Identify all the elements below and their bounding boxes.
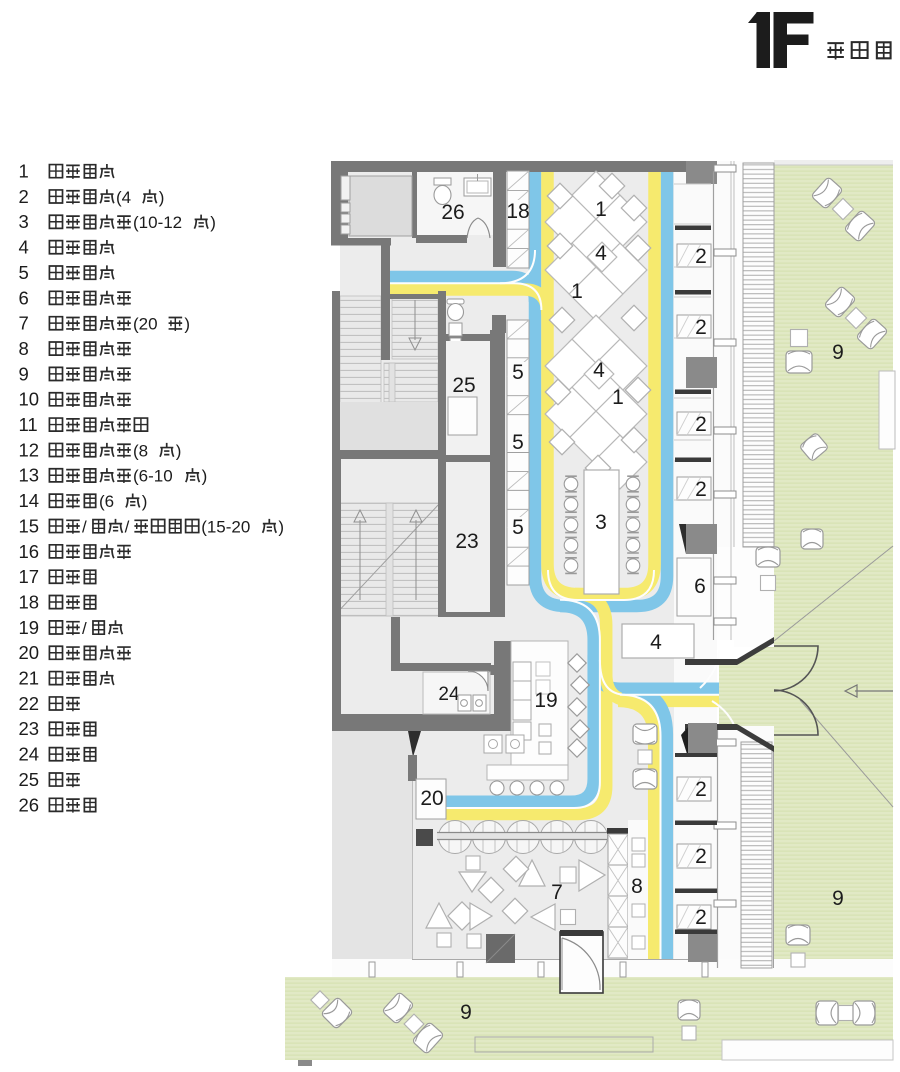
svg-text:5: 5 (19, 262, 29, 283)
svg-text:14: 14 (19, 490, 40, 511)
svg-text:(6: (6 (99, 492, 114, 511)
svg-text:3: 3 (19, 211, 29, 232)
svg-text:7: 7 (551, 881, 563, 904)
svg-text:24: 24 (19, 744, 40, 765)
svg-text:17: 17 (19, 566, 40, 587)
svg-text:(15-20: (15-20 (201, 517, 250, 536)
svg-text:9: 9 (832, 887, 844, 910)
svg-text:18: 18 (19, 591, 40, 612)
svg-text:2: 2 (695, 778, 707, 801)
svg-text:25: 25 (19, 769, 40, 790)
svg-text:1: 1 (612, 386, 624, 409)
svg-text:6: 6 (694, 575, 706, 598)
svg-text:): ) (184, 315, 190, 334)
svg-text:/: / (125, 517, 130, 536)
svg-text:9: 9 (460, 1001, 472, 1024)
svg-text:9: 9 (832, 341, 844, 364)
svg-text:): ) (210, 213, 216, 232)
svg-text:(4: (4 (116, 188, 131, 207)
svg-text:): ) (176, 441, 182, 460)
svg-text:26: 26 (441, 201, 464, 224)
svg-text:/: / (82, 517, 87, 536)
svg-text:1: 1 (595, 198, 607, 221)
svg-text:18: 18 (506, 200, 529, 223)
svg-text:2: 2 (695, 245, 707, 268)
svg-text:25: 25 (452, 374, 475, 397)
svg-text:4: 4 (19, 237, 29, 258)
svg-text:22: 22 (19, 693, 40, 714)
svg-text:21: 21 (19, 668, 40, 689)
svg-text:23: 23 (455, 530, 478, 553)
svg-text:24: 24 (438, 684, 460, 705)
svg-text:3: 3 (595, 511, 607, 534)
svg-text:(20: (20 (133, 315, 158, 334)
svg-text:26: 26 (19, 794, 40, 815)
svg-text:2: 2 (695, 845, 707, 868)
svg-text:5: 5 (512, 516, 524, 539)
svg-text:10: 10 (19, 389, 40, 410)
svg-text:8: 8 (631, 875, 643, 898)
svg-text:23: 23 (19, 718, 40, 739)
svg-text:2: 2 (695, 413, 707, 436)
svg-text:20: 20 (420, 787, 443, 810)
svg-text:19: 19 (534, 689, 557, 712)
svg-text:): ) (202, 467, 208, 486)
svg-text:16: 16 (19, 541, 40, 562)
svg-text:13: 13 (19, 465, 40, 486)
svg-text:5: 5 (512, 431, 524, 454)
svg-text:2: 2 (695, 316, 707, 339)
svg-text:8: 8 (19, 338, 29, 359)
svg-text:/: / (82, 619, 87, 638)
svg-text:2: 2 (695, 478, 707, 501)
svg-text:4: 4 (595, 242, 607, 265)
svg-text:1: 1 (19, 161, 29, 182)
svg-text:): ) (278, 517, 284, 536)
svg-text:20: 20 (19, 642, 40, 663)
svg-text:15: 15 (19, 515, 40, 536)
svg-text:6: 6 (19, 287, 29, 308)
svg-text:2: 2 (19, 186, 29, 207)
svg-text:(6-10: (6-10 (133, 467, 173, 486)
svg-text:5: 5 (512, 361, 524, 384)
svg-text:): ) (142, 492, 148, 511)
svg-text:1: 1 (571, 280, 583, 303)
svg-text:2: 2 (695, 906, 707, 929)
svg-text:7: 7 (19, 313, 29, 334)
svg-text:19: 19 (19, 617, 40, 638)
svg-text:(10-12: (10-12 (133, 213, 182, 232)
svg-text:(8: (8 (133, 441, 148, 460)
svg-text:11: 11 (19, 414, 38, 435)
svg-text:): ) (159, 188, 165, 207)
svg-text:4: 4 (593, 359, 605, 382)
svg-text:12: 12 (19, 439, 40, 460)
svg-text:4: 4 (650, 631, 662, 654)
svg-text:9: 9 (19, 363, 29, 384)
